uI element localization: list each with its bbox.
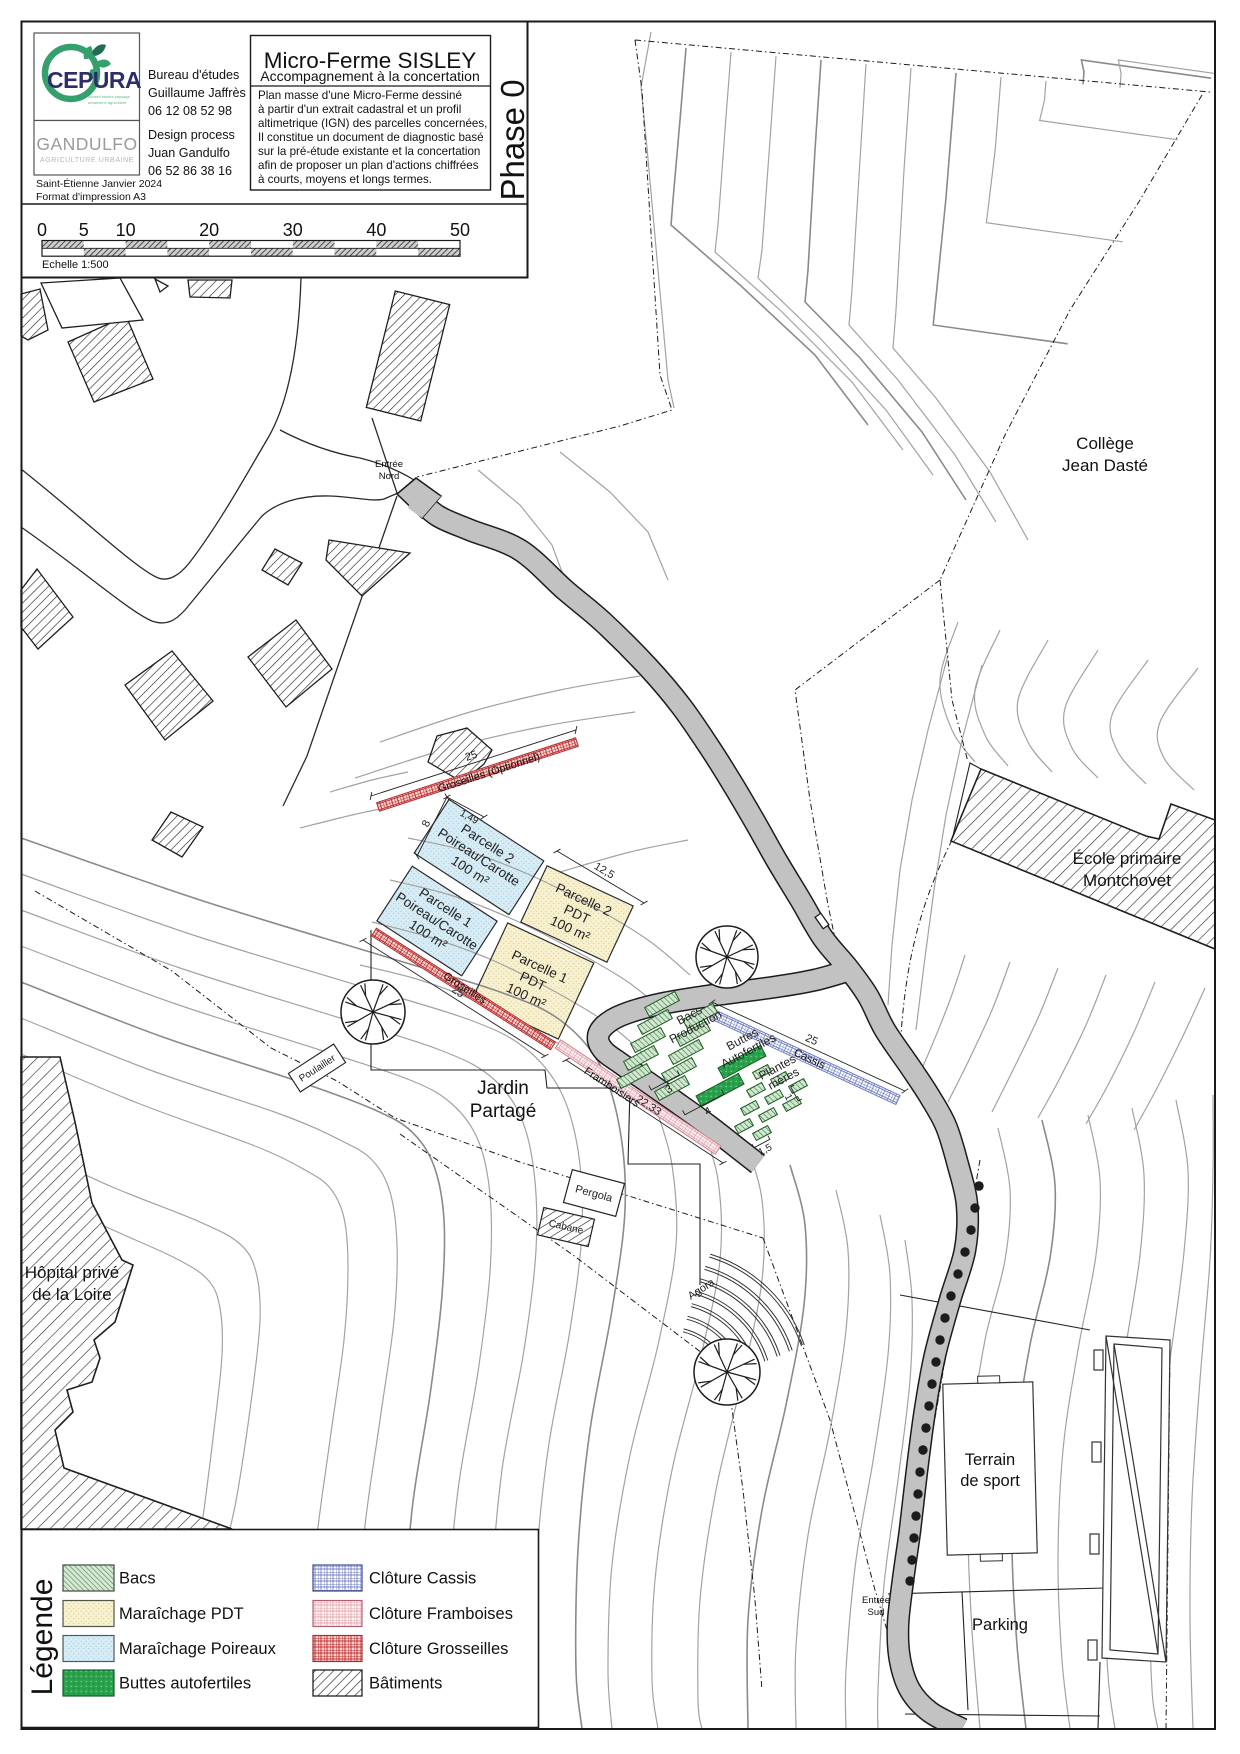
svg-text:Terrain: Terrain bbox=[965, 1451, 1015, 1469]
svg-text:Clôture Grosseilles: Clôture Grosseilles bbox=[369, 1640, 508, 1658]
svg-text:Parking: Parking bbox=[972, 1616, 1028, 1634]
svg-text:Accompagnement à la concertati: Accompagnement à la concertation bbox=[260, 68, 479, 84]
svg-text:École primaire: École primaire bbox=[1073, 849, 1182, 868]
svg-text:Il constitue un document de di: Il constitue un document de diagnostic b… bbox=[258, 131, 484, 144]
svg-text:Guillaume Jaffrès: Guillaume Jaffrès bbox=[148, 86, 246, 100]
svg-text:50: 50 bbox=[450, 220, 470, 240]
svg-text:afin de proposer un plan d'act: afin de proposer un plan d'actions chiff… bbox=[258, 159, 479, 172]
svg-text:altimetrique (IGN) des parcell: altimetrique (IGN) des parcelles concern… bbox=[258, 117, 487, 130]
svg-text:Juan Gandulfo: Juan Gandulfo bbox=[148, 146, 230, 160]
svg-text:Format d'impression A3: Format d'impression A3 bbox=[36, 191, 146, 203]
svg-text:Sud: Sud bbox=[868, 1607, 885, 1618]
svg-text:à courts, moyens et longs term: à courts, moyens et longs termes. bbox=[258, 173, 432, 186]
svg-text:Echelle 1:500: Echelle 1:500 bbox=[42, 259, 109, 271]
svg-text:Buttes autofertiles: Buttes autofertiles bbox=[119, 1675, 251, 1693]
svg-text:10: 10 bbox=[116, 220, 136, 240]
svg-text:Clôture Framboises: Clôture Framboises bbox=[369, 1605, 513, 1623]
svg-text:Partagé: Partagé bbox=[470, 1101, 537, 1122]
svg-text:06 52 86 38 16: 06 52 86 38 16 bbox=[148, 164, 232, 178]
svg-text:Maraîchage PDT: Maraîchage PDT bbox=[119, 1605, 244, 1623]
svg-text:Bacs: Bacs bbox=[119, 1570, 156, 1588]
svg-text:40: 40 bbox=[366, 220, 386, 240]
svg-text:Jean Dasté: Jean Dasté bbox=[1062, 456, 1148, 475]
svg-text:à partir d'un extrait cadastra: à partir d'un extrait cadastral et un pr… bbox=[258, 103, 461, 116]
svg-text:sur la pré-étude existante et: sur la pré-étude existante et la concert… bbox=[258, 145, 480, 158]
svg-text:CEPURA: CEPURA bbox=[47, 67, 141, 93]
svg-text:Design process: Design process bbox=[148, 128, 235, 142]
svg-text:0: 0 bbox=[37, 220, 47, 240]
svg-text:Hôpital privé: Hôpital privé bbox=[25, 1263, 120, 1282]
svg-text:20: 20 bbox=[199, 220, 219, 240]
svg-text:AGRICULTURE URBAINE: AGRICULTURE URBAINE bbox=[40, 157, 134, 164]
svg-text:GANDULFO: GANDULFO bbox=[36, 134, 137, 154]
svg-text:Plan masse d'une Micro-Ferme d: Plan masse d'une Micro-Ferme dessiné bbox=[258, 89, 462, 102]
svg-text:30: 30 bbox=[283, 220, 303, 240]
svg-text:Montchovet: Montchovet bbox=[1083, 871, 1171, 890]
svg-text:de la Loire: de la Loire bbox=[32, 1285, 111, 1304]
svg-text:Phase 0: Phase 0 bbox=[494, 79, 531, 200]
svg-text:de sport: de sport bbox=[960, 1472, 1020, 1490]
svg-text:Légende: Légende bbox=[26, 1579, 59, 1696]
svg-text:conseil études paysage: conseil études paysage bbox=[88, 94, 131, 99]
svg-text:Maraîchage Poireaux: Maraîchage Poireaux bbox=[119, 1640, 277, 1658]
svg-text:Entrée: Entrée bbox=[375, 459, 403, 470]
svg-text:Clôture Cassis: Clôture Cassis bbox=[369, 1570, 476, 1588]
svg-text:Bureau d'études: Bureau d'études bbox=[148, 68, 239, 82]
svg-text:urbanisme agriculture: urbanisme agriculture bbox=[88, 100, 127, 105]
svg-text:Nord: Nord bbox=[379, 471, 400, 482]
svg-text:Collège: Collège bbox=[1076, 434, 1134, 453]
svg-text:Jardin: Jardin bbox=[477, 1078, 529, 1099]
svg-text:5: 5 bbox=[79, 220, 89, 240]
svg-text:Saint-Étienne Janvier 2024: Saint-Étienne Janvier 2024 bbox=[36, 177, 162, 190]
svg-text:Entrée: Entrée bbox=[862, 1595, 890, 1606]
svg-text:Bâtiments: Bâtiments bbox=[369, 1675, 442, 1693]
svg-text:06 12 08 52 98: 06 12 08 52 98 bbox=[148, 104, 232, 118]
